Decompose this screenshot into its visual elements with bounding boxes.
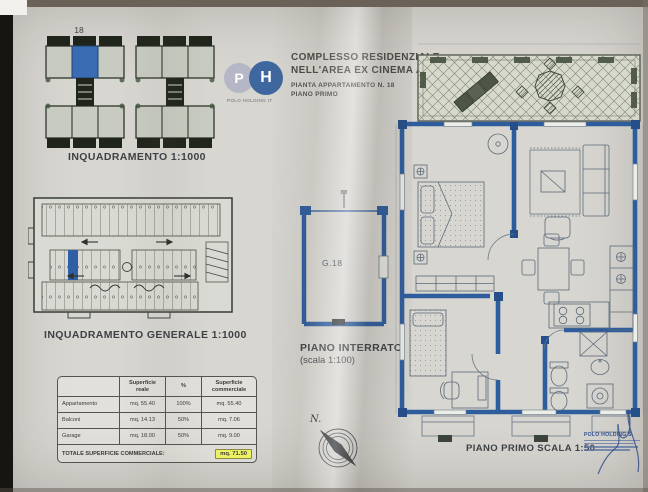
header-superficie-commerciale: Superficie commerciale bbox=[202, 377, 256, 396]
basement-caption-line2: (scala 1:100) bbox=[300, 355, 355, 366]
photo-edge-right bbox=[643, 0, 648, 492]
basement-caption-line1: PIANO INTERRATO bbox=[300, 342, 402, 354]
photo-corner-notch bbox=[0, 0, 27, 15]
garage-plan-caption: INQUADRAMENTO GENERALE 1:1000 bbox=[44, 329, 247, 341]
highlighted-apartment-unit bbox=[72, 46, 98, 78]
row-label: Appartamento bbox=[58, 397, 120, 412]
header-percent: % bbox=[166, 377, 202, 396]
door-swings bbox=[472, 234, 564, 380]
row-label: Balconi bbox=[58, 413, 120, 428]
building-block-right bbox=[136, 36, 215, 148]
logo-circle-h: H bbox=[249, 61, 283, 95]
table-row: Appartamento mq. 55.40 100% mq. 55.40 bbox=[58, 397, 256, 413]
north-label: N. bbox=[309, 414, 321, 425]
handwritten-signature bbox=[592, 402, 648, 480]
site-plan-caption: INQUADRAMENTO 1:1000 bbox=[68, 151, 206, 163]
compass-rose: N. bbox=[298, 406, 374, 482]
building-block-left bbox=[46, 36, 125, 148]
basement-unit-plan: 8 8 G.18 bbox=[296, 186, 392, 336]
table-header-row: Superficie reale % Superficie commercial… bbox=[58, 377, 256, 397]
photo-edge-bottom bbox=[0, 488, 648, 492]
furniture bbox=[410, 134, 633, 411]
project-subtitle-line1: PIANTA APPARTAMENTO N. 18 bbox=[291, 82, 395, 89]
header-empty bbox=[58, 377, 120, 396]
building-number-label: 18 bbox=[74, 25, 84, 35]
first-floor-caption: PIANO PRIMO SCALA 1:50 bbox=[466, 443, 595, 454]
row-label: Garage bbox=[58, 429, 120, 444]
row-pct: 100% bbox=[166, 397, 202, 412]
row-pct: 50% bbox=[166, 429, 202, 444]
row-comm: mq. 9.00 bbox=[202, 429, 256, 444]
row-reale: mq. 18.00 bbox=[120, 429, 166, 444]
table-row: Balconi mq. 14.13 50% mq. 7.06 bbox=[58, 413, 256, 429]
section-mark-label: 8 8 bbox=[341, 190, 348, 196]
header-superficie-reale: Superficie reale bbox=[120, 377, 166, 396]
areas-table: Superficie reale % Superficie commercial… bbox=[57, 376, 257, 463]
row-reale: mq. 14.13 bbox=[120, 413, 166, 428]
row-comm: mq. 55.40 bbox=[202, 397, 256, 412]
garage-unit-label: G.18 bbox=[322, 258, 342, 268]
total-label: TOTALE SUPERFICIE COMMERCIALE: bbox=[58, 445, 215, 462]
photo-edge-left bbox=[0, 0, 13, 492]
table-row: Garage mq. 18.00 50% mq. 9.00 bbox=[58, 429, 256, 445]
garage-level-plan bbox=[28, 192, 242, 324]
logo-caption: POLO HOLDING.IT bbox=[227, 98, 273, 103]
table-total-row: TOTALE SUPERFICIE COMMERCIALE: mq. 71.50 bbox=[58, 445, 256, 462]
site-plan-drawing: 18 bbox=[32, 24, 218, 154]
first-floor-plan-drawing bbox=[394, 24, 646, 448]
photo-edge-top bbox=[0, 0, 648, 7]
row-pct: 50% bbox=[166, 413, 202, 428]
scanned-floor-plan-photo: 18 bbox=[0, 0, 648, 492]
row-reale: mq. 55.40 bbox=[120, 397, 166, 412]
project-subtitle-line2: PIANO PRIMO bbox=[291, 91, 338, 98]
total-value-highlighted: mq. 71.50 bbox=[215, 449, 252, 459]
row-comm: mq. 7.06 bbox=[202, 413, 256, 428]
roof-terrace bbox=[418, 55, 640, 121]
